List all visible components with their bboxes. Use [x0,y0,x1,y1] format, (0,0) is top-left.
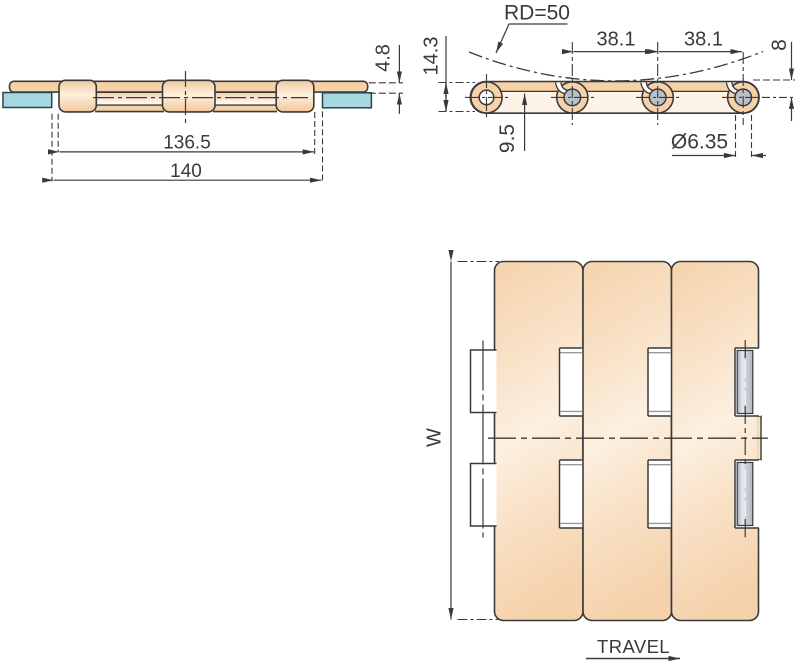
svg-text:14.3: 14.3 [421,37,443,76]
svg-text:4.8: 4.8 [373,44,395,72]
svg-text:TRAVEL: TRAVEL [597,636,670,657]
svg-text:9.5: 9.5 [496,124,519,153]
svg-text:38.1: 38.1 [684,29,723,51]
svg-text:RD=50: RD=50 [504,2,570,25]
svg-text:Ø6.35: Ø6.35 [671,131,728,154]
svg-text:W: W [424,428,446,447]
svg-text:8: 8 [768,39,791,51]
svg-text:140: 140 [170,161,202,182]
svg-text:38.1: 38.1 [597,29,636,51]
svg-text:136.5: 136.5 [163,133,211,154]
